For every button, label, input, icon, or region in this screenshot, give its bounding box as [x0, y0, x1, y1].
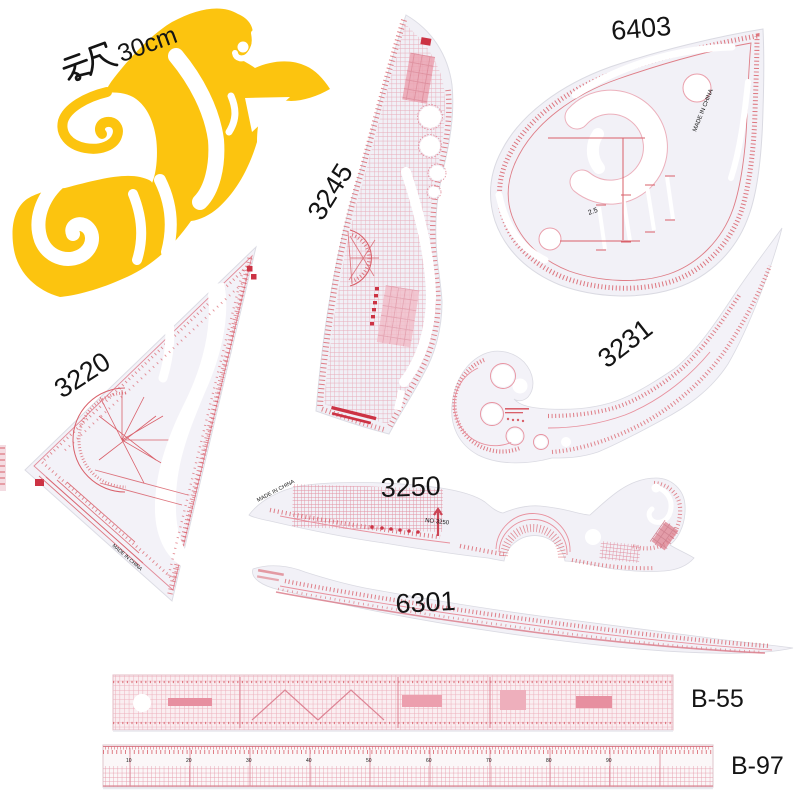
- svg-text:20: 20: [186, 758, 192, 764]
- svg-text:60: 60: [426, 758, 432, 764]
- svg-text:B-55: B-55: [691, 685, 744, 713]
- svg-text:70: 70: [486, 758, 492, 764]
- svg-text:50: 50: [366, 758, 372, 764]
- svg-text:B-97: B-97: [731, 752, 784, 780]
- svg-text:10: 10: [126, 758, 132, 764]
- svg-text:30: 30: [246, 758, 252, 764]
- svg-text:40: 40: [306, 758, 312, 764]
- svg-text:90: 90: [606, 758, 612, 764]
- svg-text:6301: 6301: [395, 586, 457, 619]
- svg-text:3250: 3250: [380, 471, 441, 503]
- svg-text:80: 80: [546, 758, 552, 764]
- svg-text:6403: 6403: [610, 11, 672, 46]
